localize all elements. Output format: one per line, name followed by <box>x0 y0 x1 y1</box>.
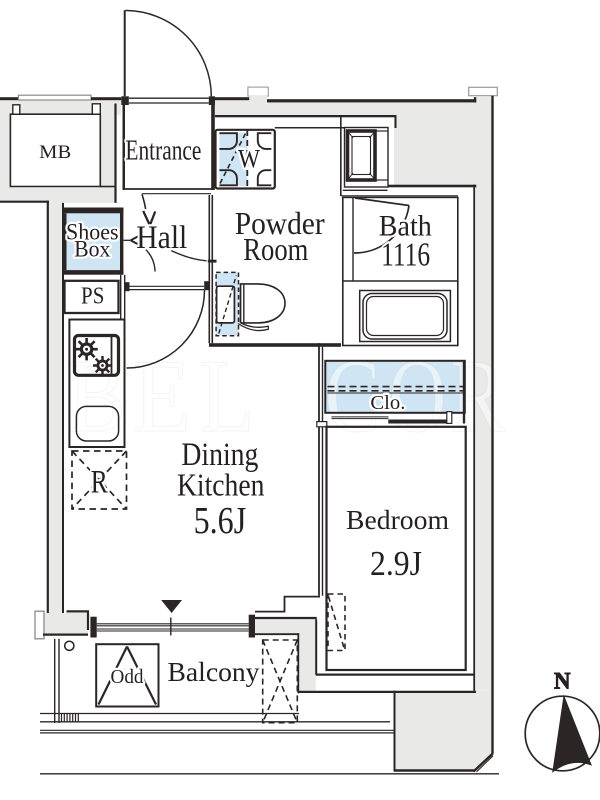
svg-text:W: W <box>238 145 260 174</box>
svg-text:Bedroom: Bedroom <box>346 505 449 535</box>
svg-text:MB: MB <box>39 142 71 163</box>
svg-text:N: N <box>554 668 571 693</box>
svg-text:Entrance: Entrance <box>125 135 201 167</box>
svg-text:Kitchen: Kitchen <box>177 466 265 502</box>
svg-text:2.9J: 2.9J <box>370 544 422 583</box>
svg-text:5.6J: 5.6J <box>194 500 247 542</box>
svg-text:Clo.: Clo. <box>370 392 405 414</box>
svg-text:PS: PS <box>81 284 104 310</box>
svg-text:Balcony: Balcony <box>168 656 260 687</box>
svg-text:Room: Room <box>243 231 308 267</box>
svg-text:R: R <box>450 337 505 454</box>
svg-text:R: R <box>91 465 108 501</box>
svg-text:Box: Box <box>74 237 111 262</box>
svg-text:Hall: Hall <box>136 220 187 256</box>
svg-text:Odd: Odd <box>111 666 144 688</box>
svg-text:1116: 1116 <box>381 237 430 274</box>
